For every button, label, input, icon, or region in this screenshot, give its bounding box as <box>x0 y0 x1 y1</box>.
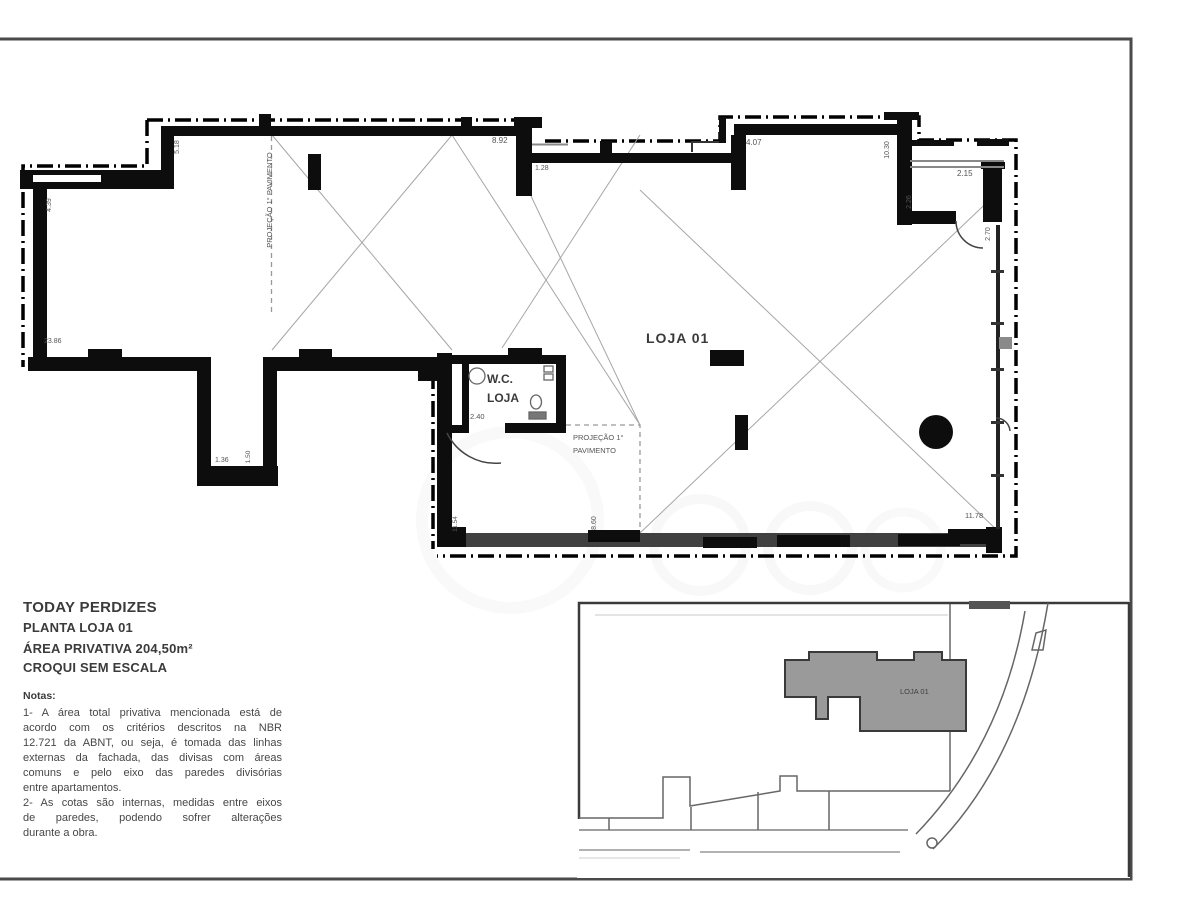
svg-text:23.86: 23.86 <box>44 338 62 345</box>
svg-text:1.28: 1.28 <box>535 165 549 172</box>
svg-text:PROJEÇÃO 1°: PROJEÇÃO 1° <box>573 433 624 442</box>
svg-text:8.92: 8.92 <box>492 136 508 145</box>
svg-text:8.60: 8.60 <box>591 516 598 530</box>
svg-text:4.07: 4.07 <box>746 138 762 147</box>
svg-text:11.78: 11.78 <box>965 511 983 520</box>
svg-text:11.54: 11.54 <box>452 516 459 532</box>
svg-text:1.50: 1.50 <box>245 450 252 463</box>
svg-text:1.36: 1.36 <box>215 457 229 464</box>
svg-text:LOJA: LOJA <box>487 391 519 405</box>
svg-text:2.15: 2.15 <box>957 169 973 178</box>
svg-text:10.30: 10.30 <box>884 141 891 159</box>
svg-text:PAVIMENTO: PAVIMENTO <box>573 446 616 455</box>
svg-text:2.70: 2.70 <box>985 227 992 241</box>
svg-text:LOJA 01: LOJA 01 <box>646 330 709 346</box>
svg-text:LOJA 01: LOJA 01 <box>900 687 929 696</box>
svg-text:W.C.: W.C. <box>487 372 513 386</box>
svg-text:2.26: 2.26 <box>906 195 913 209</box>
svg-text:2.40: 2.40 <box>470 412 485 421</box>
svg-text:PROJEÇÃO 1° PAVIMENTO: PROJEÇÃO 1° PAVIMENTO <box>265 152 274 248</box>
svg-text:4.39: 4.39 <box>46 198 53 212</box>
svg-text:5.18: 5.18 <box>174 140 181 154</box>
